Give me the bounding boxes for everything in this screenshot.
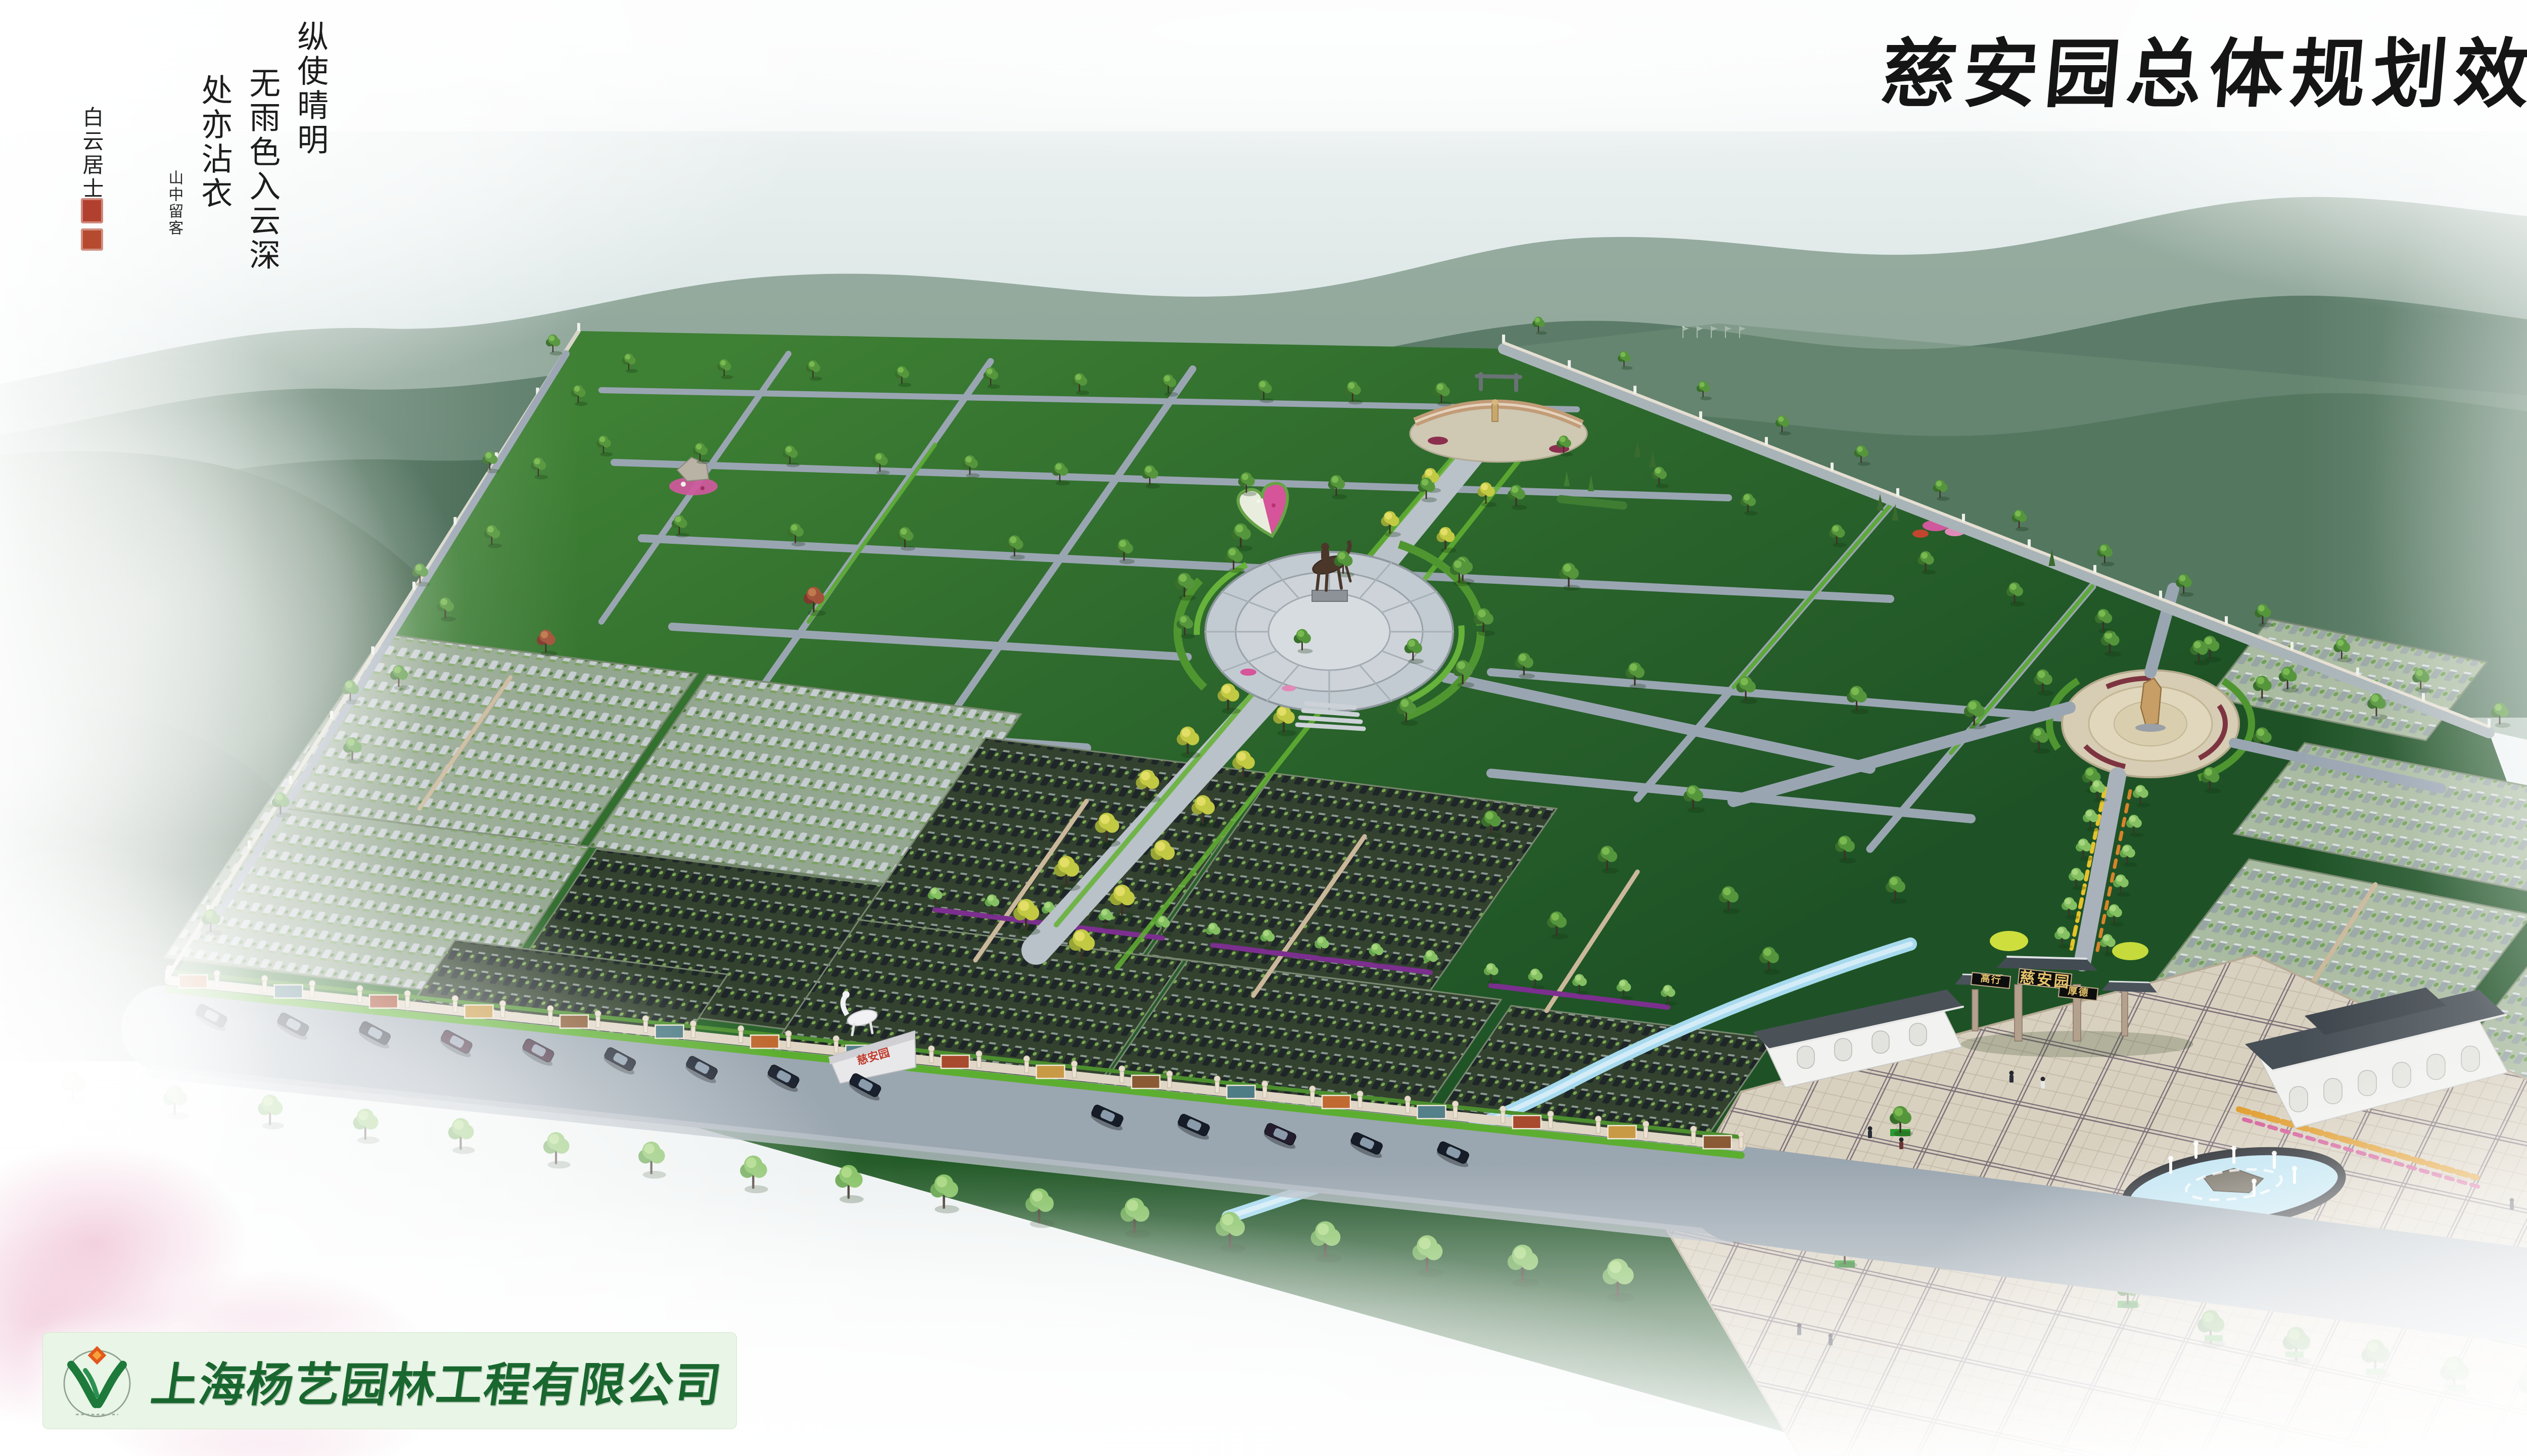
company-name: 上海杨艺园林工程有限公司 <box>148 1347 727 1415</box>
poem-column: 纵使晴明 <box>292 18 326 301</box>
calligraphy-poem: 纵使晴明 无雨色入云深 处亦沾衣 山中留客 <box>152 18 326 301</box>
page-title: 慈安园总体规划效果图 <box>1878 13 2527 122</box>
company-logo-icon <box>57 1337 137 1424</box>
seal-icon <box>81 228 103 251</box>
master-plan-rendering: 慈安园 高行 厚德 慈安园 <box>0 0 2527 1456</box>
seal-icon <box>81 198 103 223</box>
company-banner: 上海杨艺园林工程有限公司 <box>42 1332 737 1429</box>
poem-title: 山中留客 <box>166 18 182 301</box>
seal-stamps <box>81 198 103 251</box>
poem-column: 无雨色入云深 <box>244 18 278 301</box>
poem-column: 处亦沾衣 <box>196 18 230 301</box>
